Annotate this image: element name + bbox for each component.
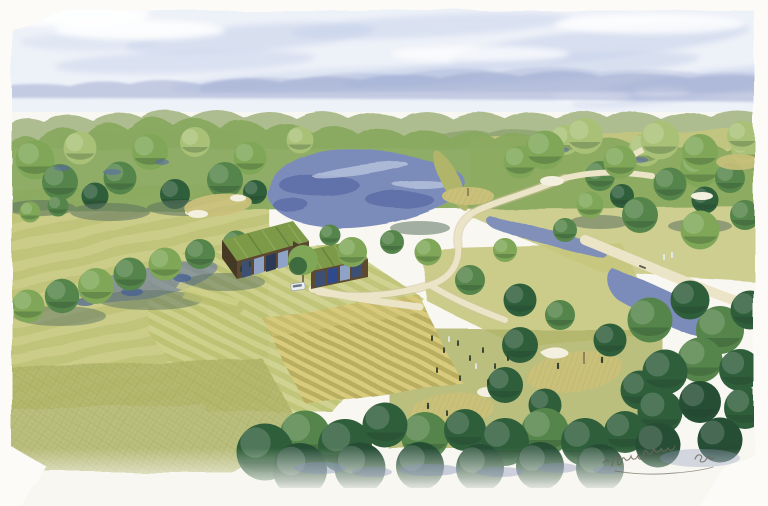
watercolor-painting — [0, 0, 768, 506]
painting-canvas — [0, 0, 768, 506]
island-green — [442, 187, 494, 205]
